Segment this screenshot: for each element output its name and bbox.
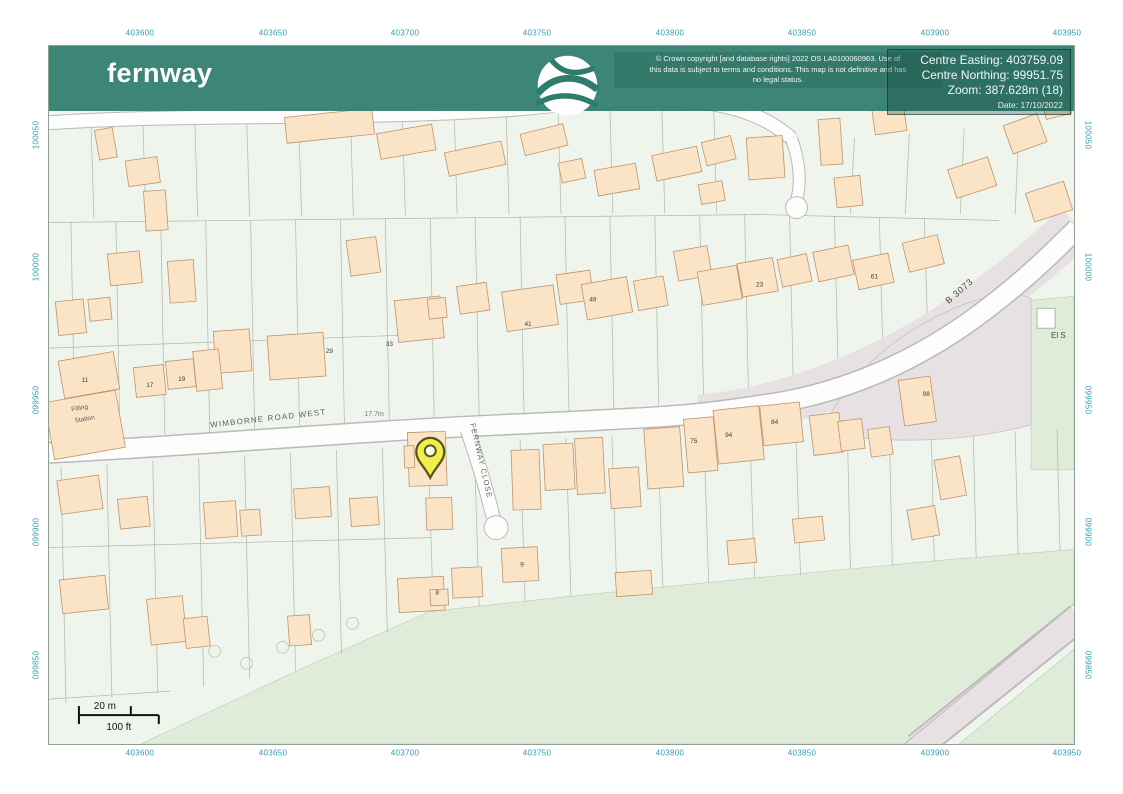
building (558, 158, 586, 182)
building (760, 402, 804, 446)
building (633, 276, 668, 311)
grid-label: 100050 (32, 121, 41, 150)
building (838, 419, 865, 452)
grid-label: 403650 (259, 29, 288, 38)
grid-label: 099850 (1084, 651, 1093, 680)
grid-label: 403700 (391, 749, 420, 758)
grid-label: 099850 (32, 651, 41, 680)
building (737, 258, 778, 298)
scale-metric-label: 20 m (94, 701, 116, 712)
building (834, 175, 863, 207)
house-number: 49 (589, 296, 597, 303)
map-page: 4036004036004036504036504037004037004037… (0, 0, 1123, 794)
building (107, 251, 142, 286)
building (907, 505, 940, 539)
building (288, 615, 312, 646)
grid-label: 099900 (1084, 518, 1093, 547)
building (456, 282, 490, 314)
building (377, 124, 437, 159)
building (183, 616, 210, 648)
house-number: 61 (871, 273, 879, 280)
house-number: 9 (520, 562, 524, 569)
building (727, 538, 757, 564)
building (746, 136, 785, 180)
header-banner: fernway © Crown copyright [and database … (49, 46, 1074, 111)
grid-label: 403950 (1053, 749, 1082, 758)
grid-label: 403800 (656, 29, 685, 38)
pin-hole (425, 445, 436, 456)
building (609, 467, 642, 509)
house-number: 19 (178, 376, 186, 383)
building (143, 190, 168, 231)
grid-label: 403850 (788, 29, 817, 38)
grid-label: 099900 (32, 518, 41, 547)
spot-height-label: 17.7m (364, 411, 384, 418)
building (698, 181, 725, 205)
grid-label: 403750 (523, 29, 552, 38)
building (792, 516, 824, 543)
building (543, 443, 575, 490)
building (193, 349, 223, 391)
building (451, 567, 482, 598)
building (615, 570, 653, 596)
building (57, 475, 103, 514)
building (404, 446, 415, 468)
building (511, 449, 541, 510)
building (444, 141, 506, 176)
house-number: 8 (435, 589, 439, 596)
building (294, 487, 332, 519)
grid-label: 403850 (788, 749, 817, 758)
map-viewport[interactable]: WIMBORNE ROAD WEST FERNWAY CLOSE B 3073 … (48, 45, 1075, 745)
map-info-panel: Centre Easting: 403759.09 Centre Northin… (887, 49, 1071, 115)
house-number: 17 (146, 382, 154, 389)
building (644, 427, 684, 489)
brand-name: fernway (107, 58, 213, 89)
building (133, 365, 166, 398)
building (165, 359, 196, 390)
house-number: 84 (771, 419, 779, 426)
building (934, 456, 966, 500)
centre-easting: Centre Easting: 403759.09 (895, 53, 1063, 68)
building (701, 135, 736, 165)
building (267, 332, 326, 380)
building (59, 575, 108, 614)
building (147, 596, 188, 645)
house-number: 75 (690, 438, 698, 445)
building (853, 253, 894, 290)
building (426, 497, 453, 530)
building (697, 265, 742, 305)
grid-label: 403600 (126, 29, 155, 38)
grid-label: 099950 (32, 386, 41, 415)
building (902, 235, 944, 273)
building (777, 254, 812, 288)
grid-label: 403650 (259, 749, 288, 758)
building (683, 417, 718, 473)
building (813, 245, 854, 282)
grid-label: 403700 (391, 29, 420, 38)
grid-label: 403600 (126, 749, 155, 758)
building (117, 496, 150, 529)
house-number: 41 (524, 321, 532, 328)
building (948, 157, 997, 198)
map-canvas: WIMBORNE ROAD WEST FERNWAY CLOSE B 3073 … (49, 46, 1074, 744)
building (868, 427, 894, 458)
building (240, 509, 262, 536)
grid-label: 100000 (32, 253, 41, 282)
building (167, 260, 196, 304)
building (346, 237, 381, 277)
building (1003, 114, 1047, 154)
grid-label: 099950 (1084, 386, 1093, 415)
grid-label: 403750 (523, 749, 552, 758)
building (520, 124, 568, 156)
house-number: 29 (326, 348, 334, 355)
building (203, 501, 237, 539)
house-number: 94 (725, 432, 733, 439)
building (125, 157, 160, 187)
building (427, 297, 447, 319)
building (594, 163, 640, 196)
building (349, 497, 379, 527)
building (575, 437, 606, 494)
grid-label: 403900 (921, 29, 950, 38)
building (809, 412, 844, 455)
building (49, 390, 125, 459)
building (430, 589, 449, 606)
centre-northing: Centre Northing: 99951.75 (895, 68, 1063, 83)
building (94, 127, 117, 160)
grid-label: 100000 (1084, 253, 1093, 282)
building (652, 146, 702, 181)
scale-bar: 20 m 100 ft (79, 701, 159, 733)
scale-imperial-label: 100 ft (106, 722, 131, 733)
house-number: 98 (923, 391, 931, 398)
building (88, 297, 112, 321)
building (713, 406, 764, 464)
house-number: 23 (756, 281, 764, 288)
map-date: Date: 17/10/2022 (895, 100, 1063, 110)
building (55, 299, 86, 336)
building (898, 376, 936, 426)
building (818, 118, 843, 165)
zoom-level: Zoom: 387.628m (18) (895, 83, 1063, 98)
grid-label: 403900 (921, 749, 950, 758)
grid-label: 100050 (1084, 121, 1093, 150)
house-number: 33 (386, 341, 394, 348)
grid-label: 403800 (656, 749, 685, 758)
substation-label: El S (1051, 331, 1066, 340)
house-number: 11 (82, 377, 89, 384)
grid-label: 403950 (1053, 29, 1082, 38)
